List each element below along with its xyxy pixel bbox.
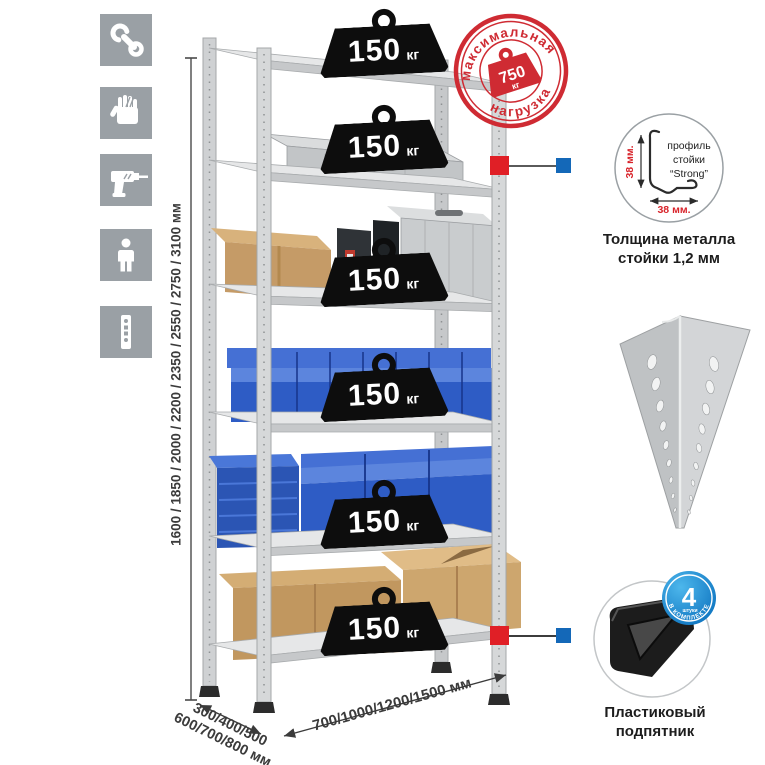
included-count-badge: 4 штуки в комплекте (660, 569, 718, 627)
foot-caption: Пластиковый подпятник (575, 703, 735, 741)
profile-label-line3: “Strong” (670, 168, 708, 180)
load-unit: кг (406, 517, 420, 534)
shelf-load-badge-5: 150кг (317, 477, 448, 550)
profile-caption-line1: Толщина металла (585, 230, 753, 249)
load-value: 150 (347, 377, 402, 414)
load-value: 150 (347, 504, 402, 541)
load-unit: кг (406, 142, 420, 159)
load-value: 150 (347, 611, 402, 648)
profile-label-line2: стойки (673, 154, 705, 166)
top-callout-blue-marker (556, 158, 571, 173)
shelf-load-badge-4: 150кг (317, 350, 448, 423)
badge-count-small-text: штуки (682, 608, 697, 614)
foot-caption-line1: Пластиковый (575, 703, 735, 722)
height-dimension-line (185, 58, 197, 700)
product-infographic: 1600 / 1850 / 2000 / 2200 / 2350 / 2550 … (0, 0, 765, 765)
height-dimensions-label: 1600 / 1850 / 2000 / 2200 / 2350 / 2550 … (169, 145, 184, 605)
shelf-load-badge-2: 150кг (317, 102, 448, 175)
profile-dim-bottom: 38 мм. (657, 204, 690, 216)
foot-caption-line2: подпятник (575, 722, 735, 741)
load-value: 150 (347, 262, 402, 299)
profile-dim-left: 38 мм. (624, 145, 636, 178)
load-value: 150 (347, 129, 402, 166)
load-unit: кг (406, 275, 420, 292)
bottom-callout-red-marker (490, 626, 509, 645)
profile-caption-line2: стойки 1,2 мм (585, 249, 753, 268)
post-profile-detail: 38 мм. 38 мм. профиль стойки “Strong” (613, 112, 725, 224)
top-callout-line (508, 165, 558, 167)
angle-post-image (602, 300, 760, 540)
shelf-load-badge-6: 150кг (317, 584, 448, 657)
max-load-stamp: максимальная нагрузка 750 кг (451, 11, 571, 131)
load-unit: кг (406, 46, 420, 63)
bottom-callout-blue-marker (556, 628, 571, 643)
profile-label-line1: профиль (667, 140, 711, 152)
profile-caption: Толщина металла стойки 1,2 мм (585, 230, 753, 268)
shelf-load-badge-3: 150кг (317, 235, 448, 308)
load-unit: кг (406, 390, 420, 407)
load-unit: кг (406, 624, 420, 641)
load-value: 150 (347, 33, 402, 70)
top-callout-red-marker (490, 156, 509, 175)
bottom-callout-line (508, 635, 558, 637)
shelf-load-badge-1: 150кг (317, 6, 448, 79)
